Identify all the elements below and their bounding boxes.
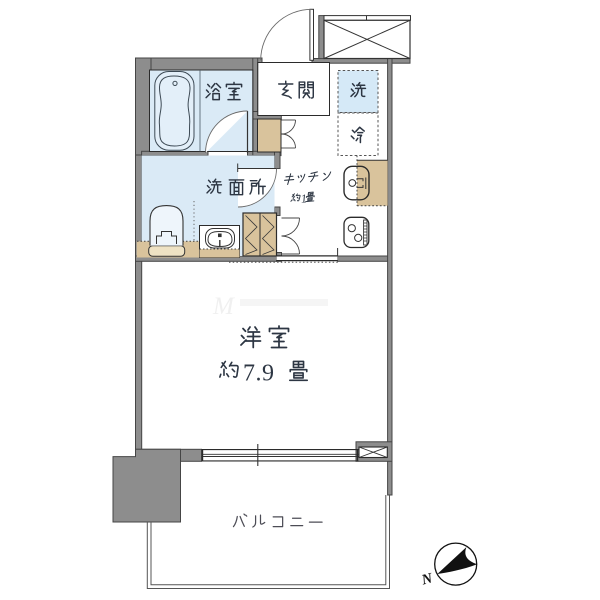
svg-text:1: 1: [300, 191, 307, 205]
svg-text:M: M: [212, 293, 235, 320]
svg-text:7.9: 7.9: [243, 361, 275, 387]
